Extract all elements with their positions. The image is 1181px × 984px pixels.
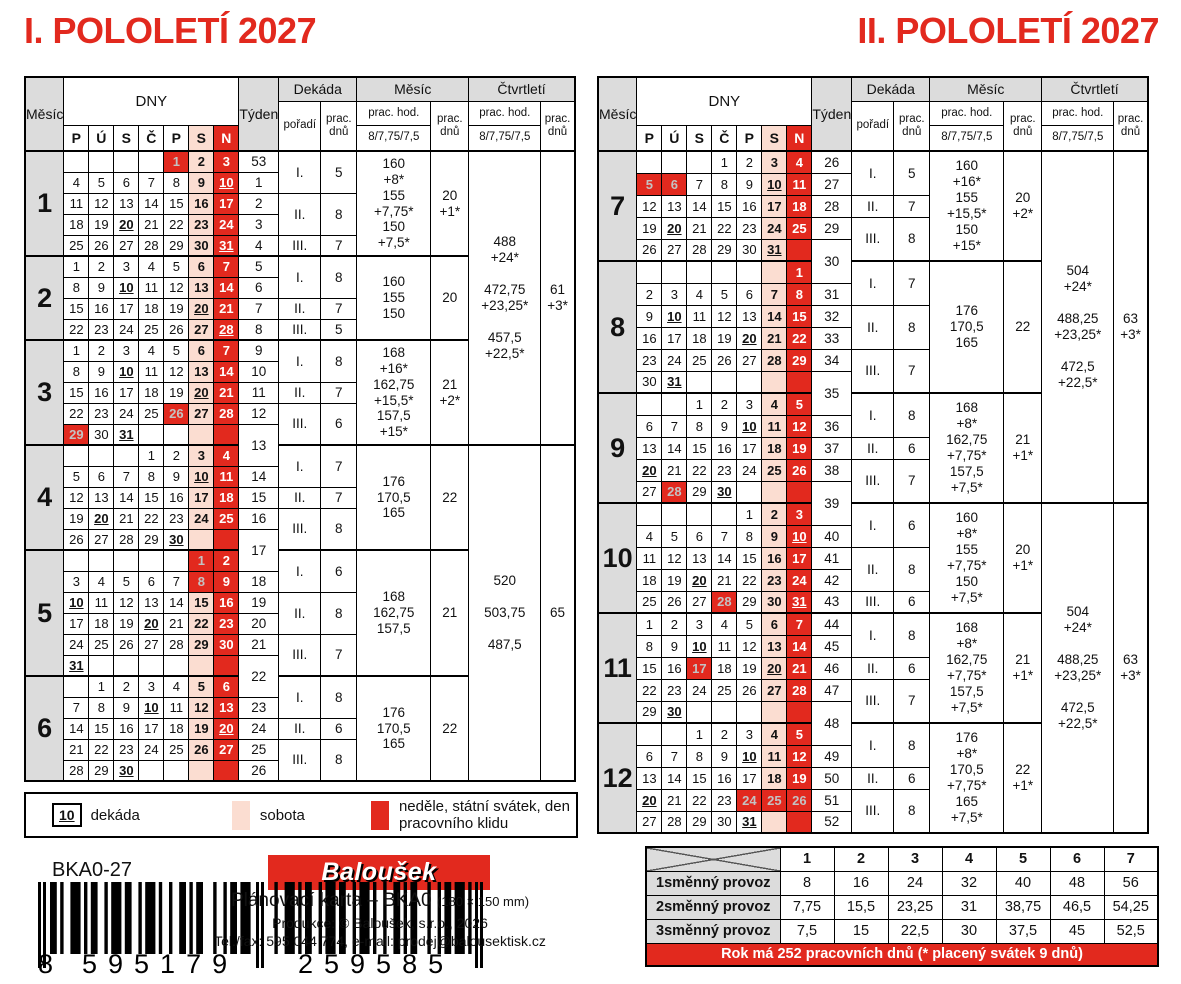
day-cell: 1 — [637, 613, 662, 635]
dekada-workdays: 8 — [894, 305, 930, 349]
month-hours-header: prac. hod. — [357, 101, 431, 125]
week-number: 44 — [812, 613, 852, 635]
day-cell: 18 — [164, 718, 189, 739]
day-cell: 8 — [139, 466, 164, 487]
week-number: 41 — [812, 547, 852, 569]
day-cell: 19 — [189, 718, 214, 739]
month-number: 12 — [598, 723, 637, 833]
dekada-workdays: 8 — [321, 340, 357, 382]
day-cell: 2 — [189, 151, 214, 172]
day-cell — [712, 503, 737, 525]
day-cell — [114, 151, 139, 172]
day-cell: 19 — [712, 327, 737, 349]
quarter-workdays: 63 +3* — [1114, 151, 1148, 503]
day-cell: 11 — [139, 361, 164, 382]
day-cell: 4 — [762, 723, 787, 745]
day-cell: 21 — [214, 382, 239, 403]
quarter-hours: 504 +24* 488,25 +23,25* 472,5 +22,5* — [1042, 151, 1114, 503]
day-cell: 13 — [662, 195, 687, 217]
quarter-workdays-header: prac. dnů — [1114, 101, 1148, 151]
day-cell: 29 — [189, 634, 214, 655]
shift-value: 46,5 — [1050, 895, 1104, 919]
day-cell: 30 — [114, 760, 139, 781]
day-cell: 27 — [214, 739, 239, 760]
day-cell — [762, 371, 787, 393]
day-cell: 2 — [662, 613, 687, 635]
week-column-header: Týden — [239, 77, 279, 151]
day-cell: 29 — [64, 424, 89, 445]
day-cell: 20 — [139, 613, 164, 634]
day-cell: 20 — [214, 718, 239, 739]
day-cell: 24 — [214, 214, 239, 235]
day-cell: 11 — [687, 305, 712, 327]
day-cell: 13 — [89, 487, 114, 508]
shift-footer-note: Rok má 252 pracovních dnů (* placený svá… — [646, 943, 1158, 966]
day-cell — [637, 503, 662, 525]
day-letter-header: P — [164, 125, 189, 151]
day-cell — [662, 503, 687, 525]
shift-col-header: 6 — [1050, 847, 1104, 871]
dekada-order: III. — [852, 789, 894, 833]
day-letter-header: P — [637, 125, 662, 151]
day-cell — [787, 811, 812, 833]
day-cell — [64, 151, 89, 172]
day-cell: 7 — [787, 613, 812, 635]
day-cell: 1 — [189, 550, 214, 571]
day-cell: 19 — [89, 214, 114, 235]
day-cell: 13 — [214, 697, 239, 718]
day-cell: 14 — [787, 635, 812, 657]
day-cell: 30 — [89, 424, 114, 445]
day-cell: 18 — [89, 613, 114, 634]
day-cell: 10 — [114, 277, 139, 298]
month-column-header: Měsíc — [598, 77, 637, 151]
day-letter-header: Ú — [89, 125, 114, 151]
day-letter-header: Č — [712, 125, 737, 151]
day-cell: 1 — [139, 445, 164, 466]
day-letter-header: S — [687, 125, 712, 151]
shift-col-header: 7 — [1104, 847, 1158, 871]
day-cell: 12 — [787, 745, 812, 767]
month-rate-header: 8/7,75/7,5 — [357, 125, 431, 151]
shift-col-header: 3 — [888, 847, 942, 871]
day-cell: 16 — [737, 195, 762, 217]
dekada-order: I. — [279, 151, 321, 193]
day-cell: 19 — [164, 382, 189, 403]
day-cell: 11 — [637, 547, 662, 569]
day-cell: 19 — [737, 657, 762, 679]
month-number: 5 — [25, 550, 64, 676]
day-cell: 15 — [164, 193, 189, 214]
dekada-workdays: 8 — [894, 393, 930, 437]
day-cell — [762, 701, 787, 723]
month-number: 6 — [25, 676, 64, 781]
dekada-order: I. — [852, 723, 894, 767]
week-number: 38 — [812, 459, 852, 481]
day-cell: 4 — [139, 340, 164, 361]
planning-card-page: I. POLOLETÍ 2027 II. POLOLETÍ 2027 Měsíc… — [0, 0, 1181, 984]
day-cell — [712, 371, 737, 393]
day-cell: 11 — [762, 415, 787, 437]
day-cell: 15 — [64, 382, 89, 403]
quarter-hours-header: prac. hod. — [469, 101, 541, 125]
day-cell: 21 — [64, 739, 89, 760]
days-group-header: DNY — [64, 77, 239, 125]
dekada-order: II. — [852, 657, 894, 679]
day-cell: 2 — [637, 283, 662, 305]
day-cell: 9 — [214, 571, 239, 592]
contact-line: Tel./fax: 595 044 774, e-mail: prodej@ba… — [150, 933, 610, 949]
dekada-symbol: 10 — [52, 803, 82, 827]
dekada-workdays: 5 — [321, 319, 357, 340]
day-cell: 17 — [114, 382, 139, 403]
day-cell: 3 — [762, 151, 787, 173]
day-cell: 30 — [662, 701, 687, 723]
day-cell: 14 — [214, 277, 239, 298]
dekada-workdays: 7 — [894, 261, 930, 305]
day-cell: 22 — [64, 319, 89, 340]
day-letter-header: S — [762, 125, 787, 151]
dekada-workdays: 5 — [321, 151, 357, 193]
day-letter-header: Č — [139, 125, 164, 151]
day-cell: 23 — [89, 403, 114, 424]
day-cell: 4 — [164, 676, 189, 697]
day-cell: 31 — [762, 239, 787, 261]
shift-value: 7,5 — [780, 919, 834, 943]
product-dimensions: (180 × 150 mm) — [437, 894, 529, 909]
dekada-workdays: 6 — [321, 550, 357, 592]
day-cell: 16 — [762, 547, 787, 569]
month-number: 8 — [598, 261, 637, 393]
day-letter-header: P — [737, 125, 762, 151]
day-cell: 10 — [662, 305, 687, 327]
day-cell — [164, 655, 189, 676]
shift-value: 54,25 — [1104, 895, 1158, 919]
day-cell: 16 — [214, 592, 239, 613]
week-number: 43 — [812, 591, 852, 613]
day-cell: 13 — [139, 592, 164, 613]
day-cell: 2 — [89, 340, 114, 361]
month-hours: 160 155 150 — [357, 256, 431, 340]
day-cell: 20 — [762, 657, 787, 679]
day-cell: 8 — [89, 697, 114, 718]
day-cell: 20 — [114, 214, 139, 235]
day-cell — [687, 151, 712, 173]
day-cell: 25 — [139, 403, 164, 424]
day-cell: 8 — [189, 571, 214, 592]
dekada-order-header: pořadí — [852, 101, 894, 151]
day-cell: 17 — [139, 718, 164, 739]
month-workdays: 21 +1* — [1004, 613, 1042, 723]
month-number: 2 — [25, 256, 64, 340]
week-number: 19 — [239, 592, 279, 613]
week-number: 46 — [812, 657, 852, 679]
calendar-table-second-half: MěsícDNYTýdenDekádaMěsícČtvrtletípořadíp… — [597, 76, 1149, 834]
day-cell: 3 — [114, 340, 139, 361]
shift-value: 22,5 — [888, 919, 942, 943]
day-cell: 28 — [662, 811, 687, 833]
day-cell — [637, 723, 662, 745]
quarter-rate-header: 8/7,75/7,5 — [1042, 125, 1114, 151]
day-cell: 13 — [687, 547, 712, 569]
dekada-order: III. — [852, 459, 894, 503]
day-cell: 24 — [687, 679, 712, 701]
month-group-header: Měsíc — [930, 77, 1042, 101]
shift-value: 23,25 — [888, 895, 942, 919]
day-cell: 24 — [662, 349, 687, 371]
day-cell — [637, 151, 662, 173]
day-cell: 19 — [637, 217, 662, 239]
day-cell: 21 — [762, 327, 787, 349]
day-cell: 7 — [687, 173, 712, 195]
day-cell: 8 — [712, 173, 737, 195]
week-number: 26 — [239, 760, 279, 781]
shift-value: 24 — [888, 871, 942, 895]
shift-value: 48 — [1050, 871, 1104, 895]
month-workdays: 22 — [431, 676, 469, 781]
dekada-order: I. — [279, 676, 321, 718]
day-cell: 29 — [687, 811, 712, 833]
day-cell — [762, 811, 787, 833]
day-cell — [712, 701, 737, 723]
day-cell: 8 — [64, 361, 89, 382]
day-cell: 12 — [637, 195, 662, 217]
dekada-workdays: 8 — [321, 193, 357, 235]
day-cell: 26 — [189, 739, 214, 760]
day-cell: 20 — [687, 569, 712, 591]
day-cell: 25 — [787, 217, 812, 239]
week-number: 28 — [812, 195, 852, 217]
dekada-workdays: 6 — [894, 767, 930, 789]
day-cell: 3 — [189, 445, 214, 466]
day-cell: 10 — [737, 415, 762, 437]
day-cell: 26 — [787, 789, 812, 811]
day-cell — [214, 529, 239, 550]
month-column-header: Měsíc — [25, 77, 64, 151]
day-cell: 27 — [737, 349, 762, 371]
shift-col-header: 4 — [942, 847, 996, 871]
day-cell: 16 — [114, 718, 139, 739]
day-cell: 6 — [662, 173, 687, 195]
day-cell: 28 — [787, 679, 812, 701]
dekada-order: I. — [279, 550, 321, 592]
dekada-workdays: 6 — [894, 503, 930, 547]
day-cell: 22 — [189, 613, 214, 634]
day-cell: 12 — [164, 361, 189, 382]
shift-row: 3směnný provoz7,51522,53037,54552,5 — [646, 919, 1158, 943]
day-cell: 4 — [139, 256, 164, 277]
day-cell: 1 — [64, 256, 89, 277]
day-cell: 27 — [637, 481, 662, 503]
dekada-order: III. — [279, 739, 321, 781]
day-cell: 16 — [189, 193, 214, 214]
day-cell: 28 — [214, 403, 239, 424]
month-workdays: 21 — [431, 550, 469, 676]
quarter-group-header: Čtvrtletí — [469, 77, 575, 101]
day-cell — [214, 760, 239, 781]
dekada-workdays: 7 — [321, 634, 357, 676]
dekada-order: II. — [279, 718, 321, 739]
week-number: 32 — [812, 305, 852, 327]
day-cell: 24 — [114, 319, 139, 340]
day-cell: 28 — [139, 235, 164, 256]
day-cell: 15 — [787, 305, 812, 327]
shift-value: 7,75 — [780, 895, 834, 919]
week-number: 13 — [239, 424, 279, 466]
product-title-line: Plánovací karta – BKA0 (180 × 150 mm) — [150, 890, 610, 912]
day-cell: 26 — [164, 319, 189, 340]
day-cell: 5 — [114, 571, 139, 592]
month-hours-header: prac. hod. — [930, 101, 1004, 125]
day-cell: 25 — [762, 789, 787, 811]
day-cell: 24 — [64, 634, 89, 655]
shift-hours-table: 12345671směnný provoz81624324048562směnn… — [645, 846, 1159, 967]
day-cell: 23 — [214, 613, 239, 634]
day-cell: 24 — [114, 403, 139, 424]
week-number: 33 — [812, 327, 852, 349]
day-cell: 28 — [64, 760, 89, 781]
day-cell: 13 — [189, 277, 214, 298]
day-cell — [787, 481, 812, 503]
day-cell: 13 — [737, 305, 762, 327]
day-cell: 12 — [189, 697, 214, 718]
day-cell: 3 — [64, 571, 89, 592]
day-cell: 24 — [189, 508, 214, 529]
day-cell — [114, 445, 139, 466]
day-cell: 7 — [662, 415, 687, 437]
day-cell: 26 — [637, 239, 662, 261]
day-cell: 7 — [662, 745, 687, 767]
day-cell: 16 — [712, 767, 737, 789]
day-cell: 16 — [712, 437, 737, 459]
quarter-hours: 520 503,75 487,5 — [469, 445, 541, 781]
day-cell: 16 — [89, 298, 114, 319]
shift-row: 1směnný provoz8162432404856 — [646, 871, 1158, 895]
dekada-workdays: 7 — [894, 459, 930, 503]
day-cell: 2 — [737, 151, 762, 173]
dekada-workdays-header: prac. dnů — [321, 101, 357, 151]
day-cell: 30 — [214, 634, 239, 655]
dekada-workdays: 6 — [321, 403, 357, 445]
week-number: 50 — [812, 767, 852, 789]
week-number: 21 — [239, 634, 279, 655]
shift-value: 38,75 — [996, 895, 1050, 919]
day-cell: 4 — [64, 172, 89, 193]
day-cell: 30 — [712, 481, 737, 503]
day-cell: 26 — [164, 403, 189, 424]
day-cell: 3 — [687, 613, 712, 635]
day-cell: 10 — [64, 592, 89, 613]
day-cell — [787, 239, 812, 261]
day-cell: 25 — [89, 634, 114, 655]
day-cell: 1 — [737, 503, 762, 525]
day-cell: 8 — [164, 172, 189, 193]
dekada-order: II. — [279, 193, 321, 235]
day-cell: 17 — [687, 657, 712, 679]
day-cell — [189, 424, 214, 445]
day-cell: 14 — [214, 361, 239, 382]
dekada-workdays: 7 — [894, 679, 930, 723]
day-cell: 28 — [164, 634, 189, 655]
day-cell: 5 — [64, 466, 89, 487]
day-cell: 28 — [214, 319, 239, 340]
day-cell — [762, 261, 787, 283]
day-cell: 19 — [114, 613, 139, 634]
week-number: 14 — [239, 466, 279, 487]
day-cell: 13 — [762, 635, 787, 657]
week-number: 27 — [812, 173, 852, 195]
saturday-swatch — [232, 801, 250, 830]
day-cell — [662, 151, 687, 173]
title-second-half: II. POLOLETÍ 2027 — [857, 10, 1159, 52]
day-cell: 26 — [662, 591, 687, 613]
day-cell: 7 — [64, 697, 89, 718]
day-cell: 9 — [662, 635, 687, 657]
day-cell: 30 — [737, 239, 762, 261]
day-cell: 6 — [114, 172, 139, 193]
month-hours: 176 170,5 165 — [357, 445, 431, 550]
day-cell: 3 — [737, 723, 762, 745]
day-cell: 26 — [712, 349, 737, 371]
day-cell — [737, 371, 762, 393]
dekada-order: I. — [279, 445, 321, 487]
month-workdays: 20 +1* — [1004, 503, 1042, 613]
dekada-order: III. — [279, 508, 321, 550]
month-number: 11 — [598, 613, 637, 723]
month-workdays: 21 +1* — [1004, 393, 1042, 503]
day-cell: 3 — [737, 393, 762, 415]
day-cell: 16 — [89, 382, 114, 403]
month-workdays: 22 +1* — [1004, 723, 1042, 833]
day-cell: 27 — [189, 403, 214, 424]
day-cell: 24 — [737, 459, 762, 481]
day-cell: 30 — [637, 371, 662, 393]
day-cell: 22 — [64, 403, 89, 424]
day-cell: 6 — [637, 745, 662, 767]
calendar-table-first-half: MěsícDNYTýdenDekádaMěsícČtvrtletípořadíp… — [24, 76, 576, 782]
day-cell: 31 — [662, 371, 687, 393]
barcode-digit-group: 595179 — [82, 949, 238, 980]
week-number: 5 — [239, 256, 279, 277]
day-cell: 25 — [637, 591, 662, 613]
dekada-workdays: 7 — [321, 382, 357, 403]
month-rate-header: 8/7,75/7,5 — [930, 125, 1004, 151]
day-cell: 8 — [737, 525, 762, 547]
day-cell: 20 — [637, 789, 662, 811]
dekada-order: II. — [852, 305, 894, 349]
day-cell: 16 — [662, 657, 687, 679]
day-cell: 9 — [189, 172, 214, 193]
day-cell — [64, 550, 89, 571]
day-cell: 22 — [637, 679, 662, 701]
week-number: 17 — [239, 529, 279, 571]
day-cell: 20 — [189, 382, 214, 403]
day-cell — [637, 261, 662, 283]
day-cell: 30 — [164, 529, 189, 550]
week-number: 51 — [812, 789, 852, 811]
day-cell: 1 — [787, 261, 812, 283]
day-cell: 11 — [214, 466, 239, 487]
day-cell: 7 — [164, 571, 189, 592]
shift-value: 8 — [780, 871, 834, 895]
day-cell — [787, 701, 812, 723]
month-number: 1 — [25, 151, 64, 256]
day-cell: 1 — [687, 723, 712, 745]
day-cell: 21 — [662, 459, 687, 481]
day-cell: 6 — [189, 256, 214, 277]
day-cell: 11 — [787, 173, 812, 195]
day-cell: 1 — [687, 393, 712, 415]
